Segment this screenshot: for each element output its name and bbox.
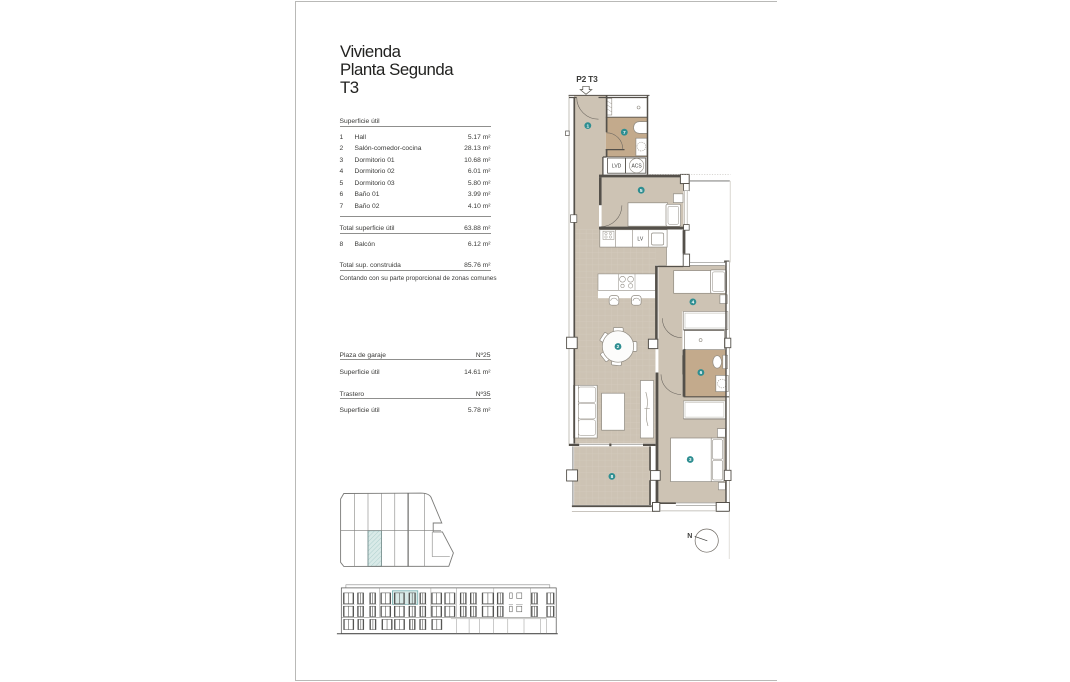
svg-text:4: 4 <box>692 300 695 306</box>
svg-text:N: N <box>687 533 692 540</box>
svg-text:5: 5 <box>640 188 643 194</box>
svg-text:ACS: ACS <box>631 164 642 170</box>
svg-text:7: 7 <box>623 130 626 136</box>
svg-text:8: 8 <box>611 474 614 480</box>
svg-text:P2 T3: P2 T3 <box>576 74 598 84</box>
svg-text:2: 2 <box>617 344 620 350</box>
svg-text:3: 3 <box>689 457 692 463</box>
svg-text:1: 1 <box>586 123 589 129</box>
svg-text:LV: LV <box>637 237 643 243</box>
svg-text:LVD: LVD <box>612 164 622 170</box>
svg-text:6: 6 <box>700 370 703 376</box>
